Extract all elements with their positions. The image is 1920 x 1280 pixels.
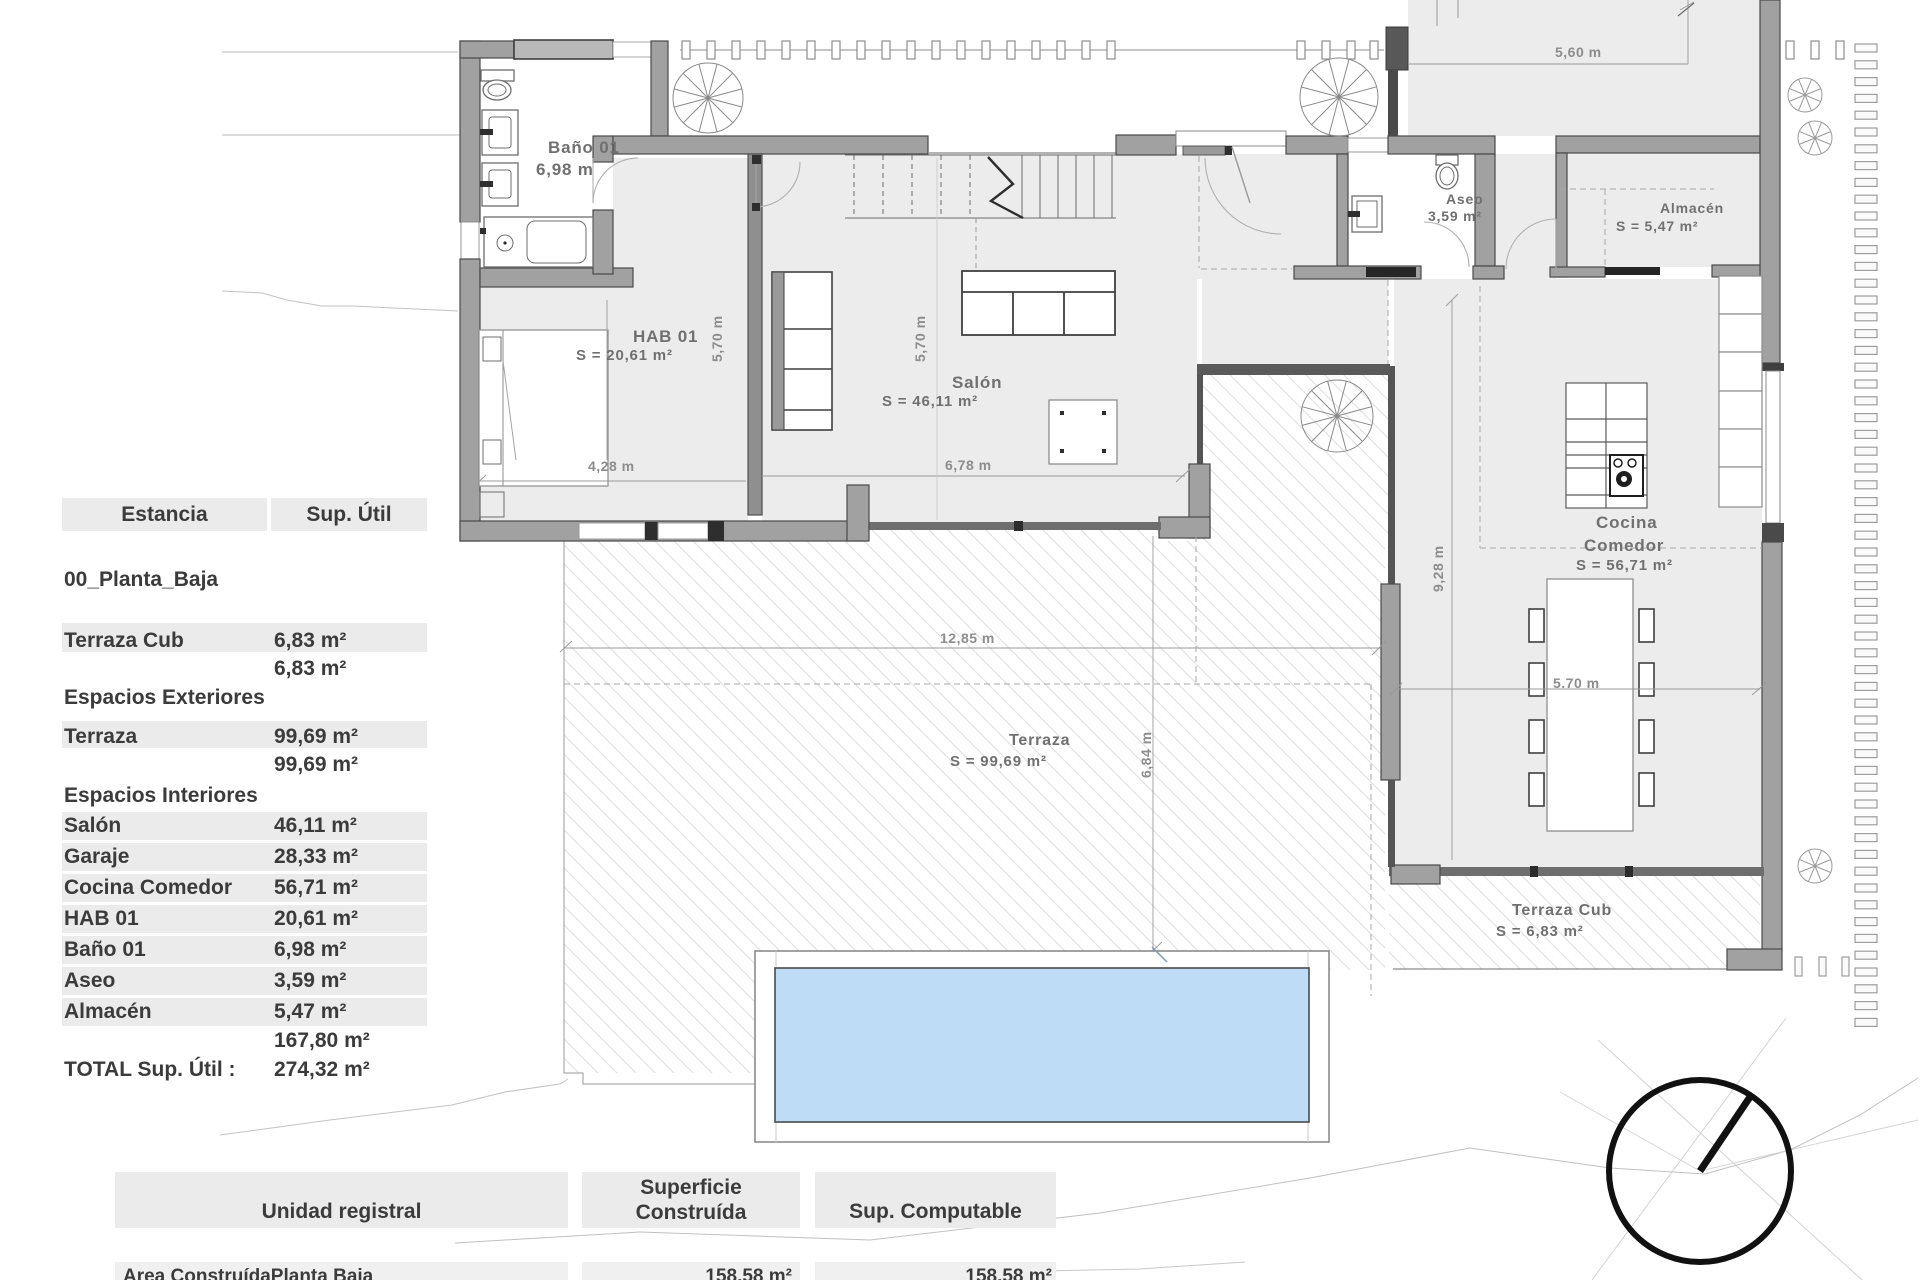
svg-text:3,59 m²: 3,59 m² — [1428, 208, 1482, 224]
svg-text:12,85 m: 12,85 m — [940, 630, 995, 646]
svg-text:9,28 m: 9,28 m — [1430, 545, 1446, 592]
svg-text:S = 99,69 m²: S = 99,69 m² — [950, 753, 1047, 770]
svg-text:Salón: Salón — [952, 373, 1002, 392]
svg-text:Baño 01: Baño 01 — [548, 138, 620, 157]
svg-text:5,60 m: 5,60 m — [1555, 44, 1602, 60]
svg-text:5.70 m: 5.70 m — [1553, 675, 1600, 691]
svg-text:HAB 01: HAB 01 — [633, 327, 698, 346]
svg-text:S = 5,47 m²: S = 5,47 m² — [1616, 218, 1698, 234]
svg-text:S = 46,11 m²: S = 46,11 m² — [882, 393, 978, 410]
svg-text:4,28 m: 4,28 m — [588, 458, 635, 474]
svg-text:S = 6,83 m²: S = 6,83 m² — [1496, 923, 1584, 940]
svg-text:5,70 m: 5,70 m — [709, 315, 725, 362]
svg-text:S = 56,71 m²: S = 56,71 m² — [1576, 557, 1673, 574]
svg-text:6,98 m: 6,98 m — [536, 160, 594, 179]
svg-text:Aseo: Aseo — [1446, 191, 1483, 207]
svg-text:5,70 m: 5,70 m — [912, 315, 928, 362]
svg-text:Almacén: Almacén — [1660, 200, 1724, 216]
svg-text:S = 20,61 m²: S = 20,61 m² — [576, 347, 673, 364]
svg-text:6,84 m: 6,84 m — [1138, 731, 1154, 778]
svg-text:Terraza Cub: Terraza Cub — [1512, 902, 1612, 919]
svg-text:Cocina: Cocina — [1596, 513, 1657, 532]
svg-text:Terraza: Terraza — [1009, 732, 1070, 749]
svg-text:Comedor: Comedor — [1584, 536, 1664, 555]
svg-text:6,78 m: 6,78 m — [945, 457, 992, 473]
